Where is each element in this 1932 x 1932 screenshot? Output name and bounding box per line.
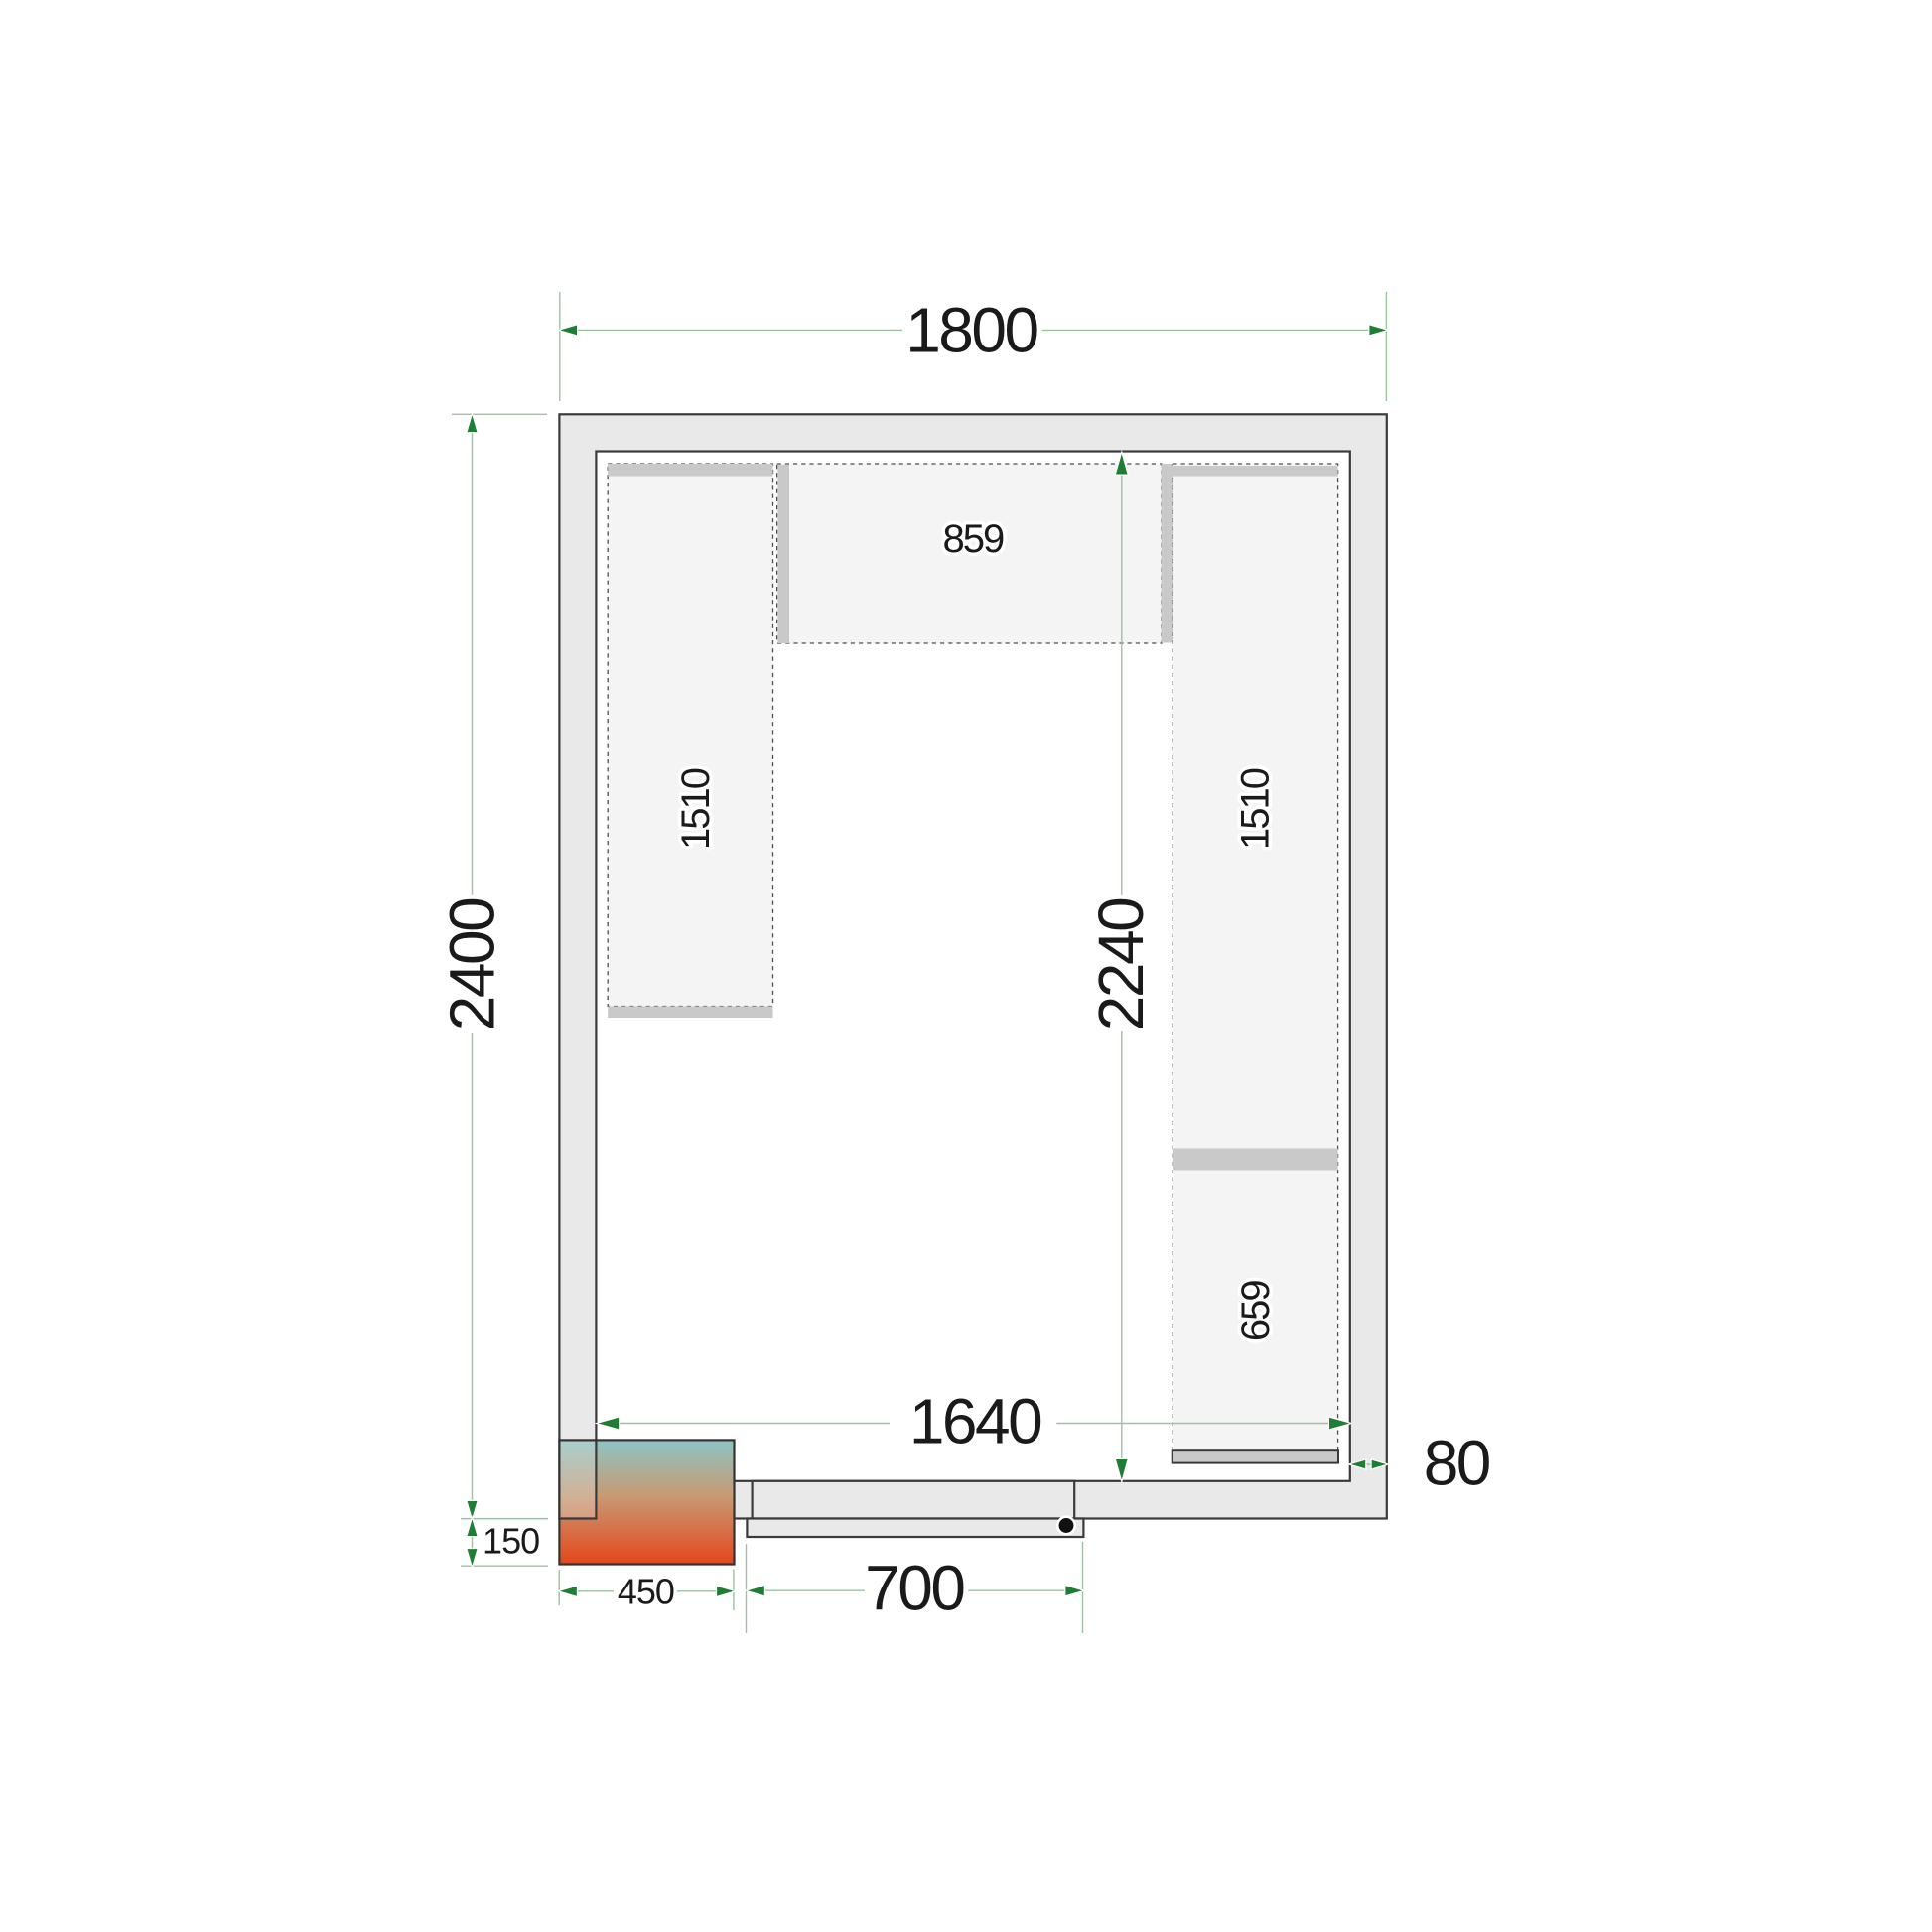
svg-text:700: 700 — [865, 1553, 964, 1624]
svg-text:1640: 1640 — [909, 1386, 1041, 1457]
svg-text:2400: 2400 — [437, 898, 508, 1031]
svg-text:659: 659 — [1234, 1281, 1278, 1341]
svg-text:2240: 2240 — [1085, 898, 1157, 1031]
svg-text:450: 450 — [618, 1571, 674, 1611]
svg-text:859: 859 — [943, 517, 1004, 561]
svg-text:1800: 1800 — [905, 294, 1037, 365]
svg-text:80: 80 — [1424, 1427, 1490, 1498]
svg-text:1510: 1510 — [1234, 768, 1278, 850]
svg-text:1510: 1510 — [674, 768, 718, 850]
svg-text:150: 150 — [483, 1521, 539, 1562]
